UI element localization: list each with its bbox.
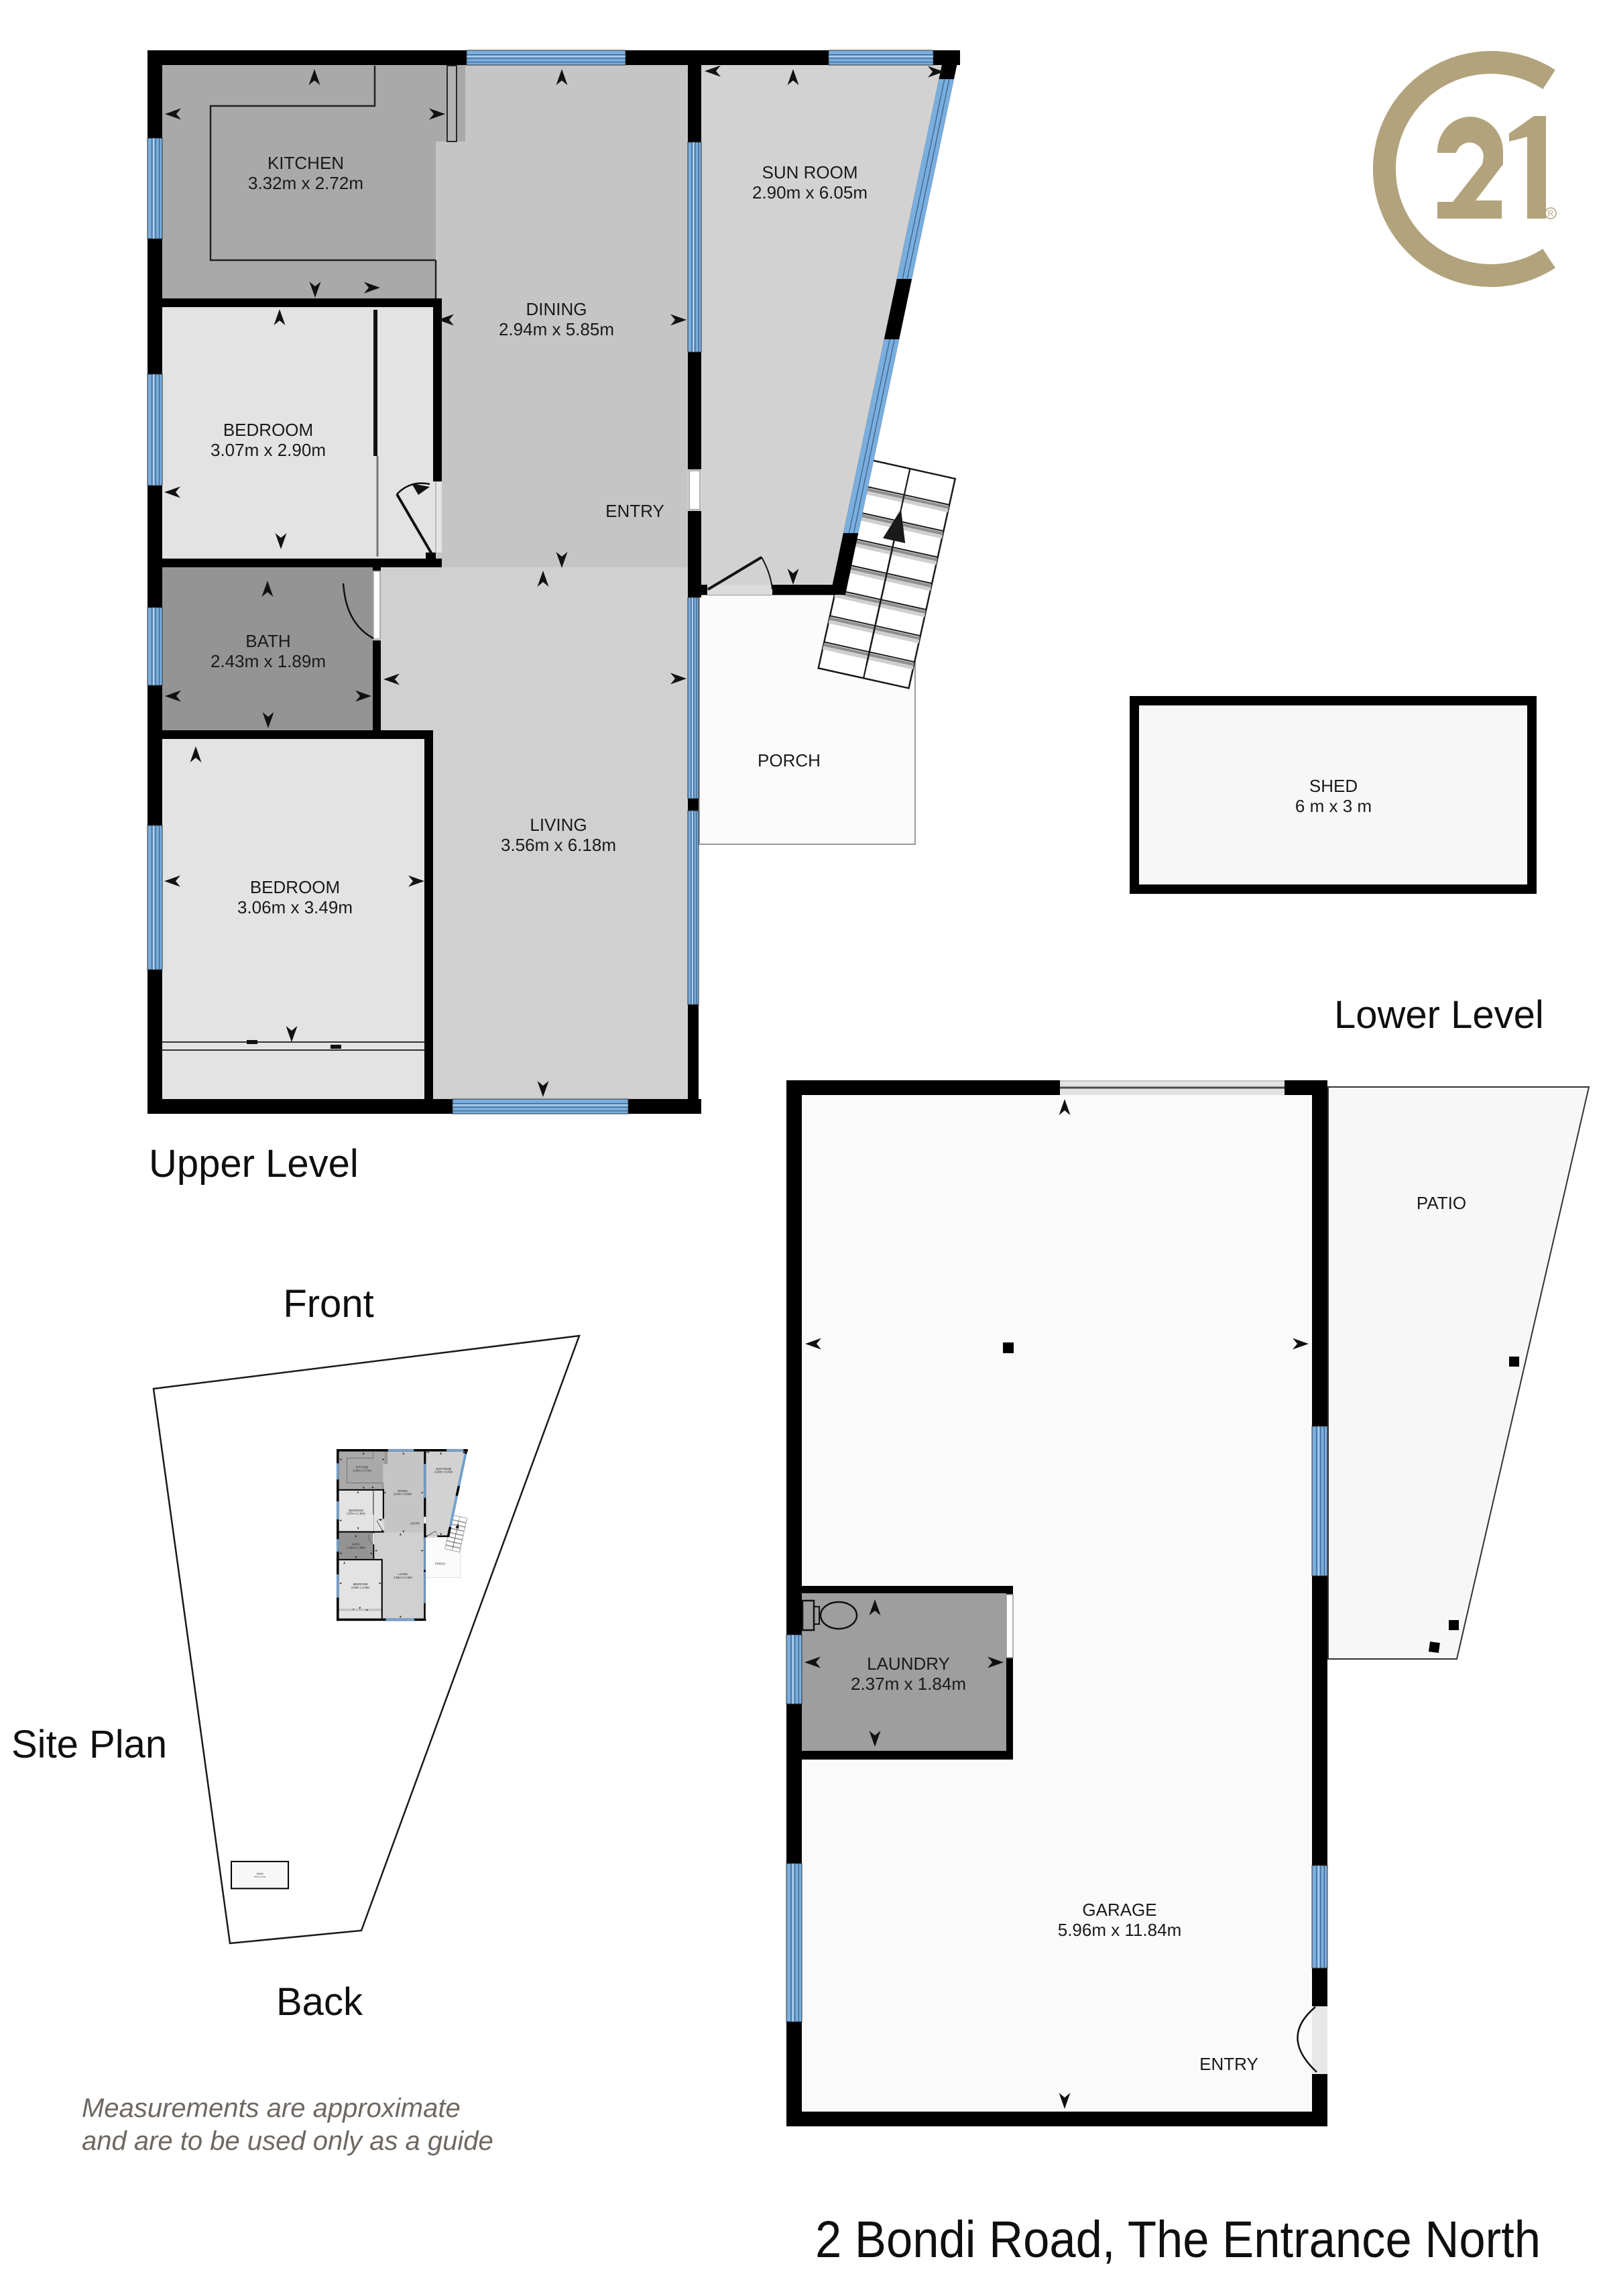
svg-text:Site Plan: Site Plan	[11, 1723, 167, 1766]
svg-text:Upper Level: Upper Level	[149, 1142, 359, 1186]
svg-text:KITCHEN: KITCHEN	[267, 153, 344, 173]
svg-text:5.96m x 11.84m: 5.96m x 11.84m	[1058, 1920, 1182, 1940]
svg-text:2.37m x 1.84m: 2.37m x 1.84m	[851, 1674, 966, 1694]
svg-text:and are to be used only as a g: and are to be used only as a guide	[82, 2126, 493, 2156]
svg-text:DINING: DINING	[526, 299, 587, 319]
svg-text:R: R	[1548, 209, 1554, 219]
svg-text:3.32m x 2.72m: 3.32m x 2.72m	[248, 173, 363, 193]
svg-text:Measurements are approximate: Measurements are approximate	[82, 2093, 461, 2123]
svg-text:BATH: BATH	[245, 631, 290, 651]
svg-text:SHED: SHED	[1309, 776, 1358, 796]
svg-text:LIVING: LIVING	[530, 815, 587, 835]
svg-text:Lower Level: Lower Level	[1334, 993, 1544, 1037]
svg-text:2.43m x 1.89m: 2.43m x 1.89m	[211, 651, 326, 671]
svg-text:3.06m x 3.49m: 3.06m x 3.49m	[237, 897, 353, 917]
svg-text:BEDROOM: BEDROOM	[250, 877, 340, 897]
svg-text:3.07m x 2.90m: 3.07m x 2.90m	[211, 440, 326, 460]
svg-text:PORCH: PORCH	[758, 750, 821, 770]
svg-text:3.56m x 6.18m: 3.56m x 6.18m	[501, 835, 616, 855]
svg-text:Back: Back	[276, 1980, 363, 2024]
svg-text:2.90m x 6.05m: 2.90m x 6.05m	[752, 182, 868, 203]
svg-text:PATIO: PATIO	[1417, 1193, 1466, 1213]
svg-text:2.94m x 5.85m: 2.94m x 5.85m	[499, 319, 614, 339]
svg-text:GARAGE: GARAGE	[1082, 1900, 1156, 1920]
svg-text:2 Bondi Road, The Entrance Nor: 2 Bondi Road, The Entrance North	[815, 2211, 1541, 2269]
svg-text:LAUNDRY: LAUNDRY	[867, 1654, 950, 1674]
svg-text:Front: Front	[283, 1282, 373, 1326]
svg-text:ENTRY: ENTRY	[605, 501, 664, 521]
svg-text:ENTRY: ENTRY	[1199, 2054, 1258, 2074]
svg-text:6 m x 3 m: 6 m x 3 m	[1295, 796, 1372, 816]
svg-text:BEDROOM: BEDROOM	[223, 420, 313, 440]
svg-text:SUN ROOM: SUN ROOM	[762, 162, 858, 182]
